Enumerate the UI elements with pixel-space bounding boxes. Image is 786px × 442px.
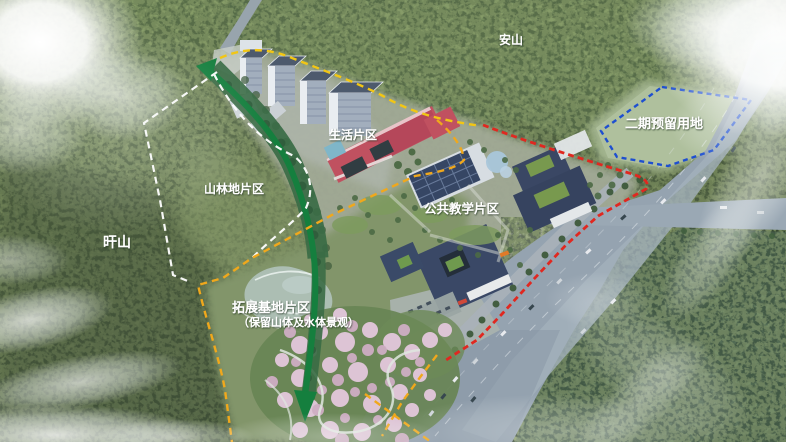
svg-text:拓展基地片区: 拓展基地片区 xyxy=(232,300,310,315)
svg-text:安山: 安山 xyxy=(499,32,523,47)
svg-text:生活片区: 生活片区 xyxy=(329,127,377,142)
svg-text:山林地片区: 山林地片区 xyxy=(204,181,264,196)
svg-text:（保留山体及水体景观）: （保留山体及水体景观） xyxy=(238,315,359,329)
svg-text:公共教学片区: 公共教学片区 xyxy=(424,201,500,216)
svg-text:二期预留用地: 二期预留用地 xyxy=(625,116,703,131)
svg-text:旰山: 旰山 xyxy=(103,234,131,250)
